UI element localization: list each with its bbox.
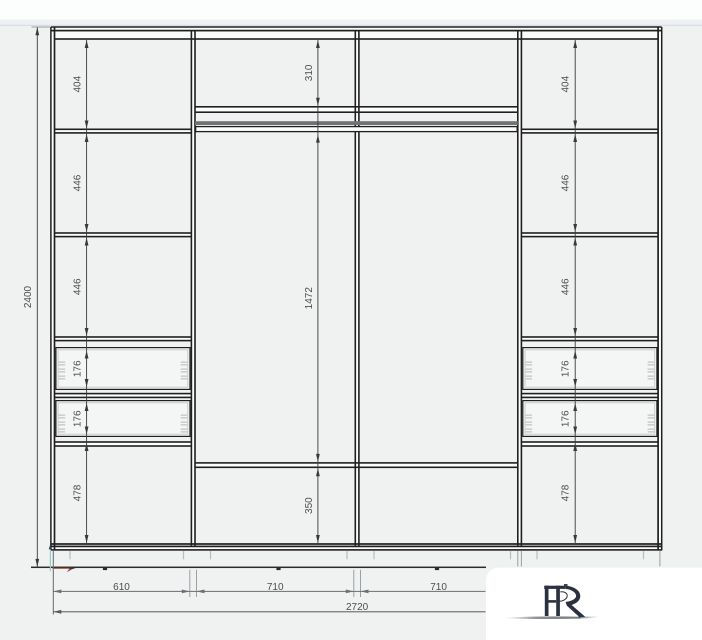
svg-text:404: 404 <box>72 75 83 92</box>
svg-text:176: 176 <box>72 360 83 377</box>
svg-text:446: 446 <box>72 278 83 295</box>
svg-text:2720: 2720 <box>346 602 369 613</box>
svg-text:1472: 1472 <box>304 287 315 310</box>
svg-text:446: 446 <box>560 278 571 295</box>
svg-text:478: 478 <box>560 484 571 501</box>
svg-text:176: 176 <box>560 360 571 377</box>
svg-text:710: 710 <box>430 582 447 593</box>
svg-text:350: 350 <box>304 497 315 514</box>
svg-text:446: 446 <box>560 174 571 191</box>
svg-text:446: 446 <box>72 174 83 191</box>
svg-text:404: 404 <box>560 75 571 92</box>
svg-text:710: 710 <box>267 582 284 593</box>
svg-text:310: 310 <box>304 64 315 81</box>
svg-text:2400: 2400 <box>23 285 34 308</box>
svg-text:176: 176 <box>72 410 83 427</box>
svg-text:176: 176 <box>560 410 571 427</box>
svg-text:478: 478 <box>72 484 83 501</box>
svg-text:610: 610 <box>113 582 130 593</box>
